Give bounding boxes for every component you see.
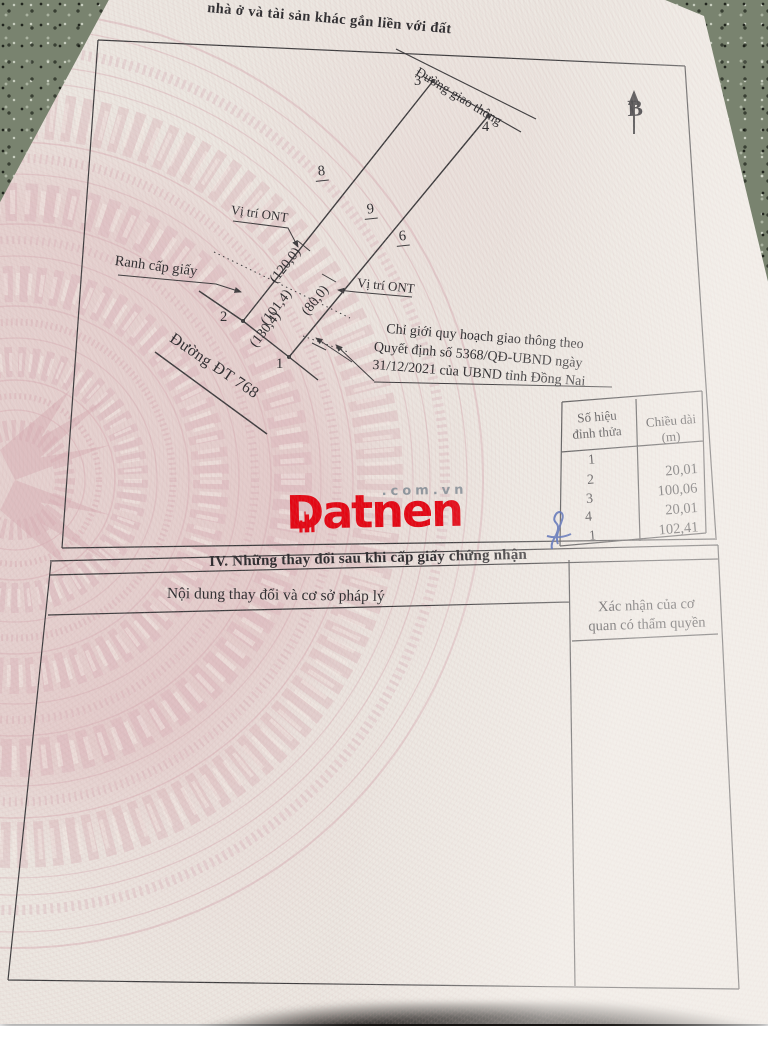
vertex-3-label: 3 <box>414 73 421 90</box>
certificate-paper: nhà ở và tài sản khác gắn liền với đất B… <box>0 0 768 1024</box>
vertex-table-vertex-cell: 2 <box>587 472 595 488</box>
vertex-table-length-cell: 20,01 <box>665 461 699 481</box>
vertex-table-length-cell: 20,01 <box>665 500 699 520</box>
photo-bottom-shadow <box>200 1002 760 1046</box>
north-label: B <box>627 95 643 122</box>
leader-planning-2 <box>316 338 352 362</box>
section-iv-col1-header: Nội dung thay đổi và cơ sở pháp lý <box>167 585 385 606</box>
vertex-table-vertex-cell: 4 <box>585 509 593 525</box>
vertex-1-label: 1 <box>276 356 283 373</box>
leader-planning-1 <box>336 345 374 381</box>
adjacent-parcel-6-label: 6 <box>395 228 410 247</box>
vertex-table-vertex-cell: 1 <box>588 452 596 468</box>
pen-mark <box>547 512 571 549</box>
section-iv-col2-header: Xác nhận của cơ quan có thẩm quyền <box>577 594 716 637</box>
vertex-table-length-cell: 102,41 <box>658 519 699 539</box>
adjacent-parcel-9-label: 9 <box>363 201 378 220</box>
granite-table-background: nhà ở và tài sản khác gắn liền với đất B… <box>0 0 768 1024</box>
vertex-table-header-col2-line2: (m) <box>661 428 681 445</box>
vertex-table-vertex-cell: 1 <box>589 528 597 544</box>
vertex-table-length-cell: 100,06 <box>657 480 698 500</box>
vertex-table-vertex-cell: 3 <box>586 491 594 507</box>
leader-vi-tri-ont-top <box>233 221 298 247</box>
vertex-2-label: 2 <box>220 309 227 326</box>
building-icon <box>299 511 315 532</box>
road-top-lines <box>396 49 536 132</box>
watermark-logo: .com.vn Datnen <box>286 482 492 540</box>
adjacent-parcel-8-label: 8 <box>314 163 329 182</box>
vertex-4-label: 4 <box>482 119 489 136</box>
